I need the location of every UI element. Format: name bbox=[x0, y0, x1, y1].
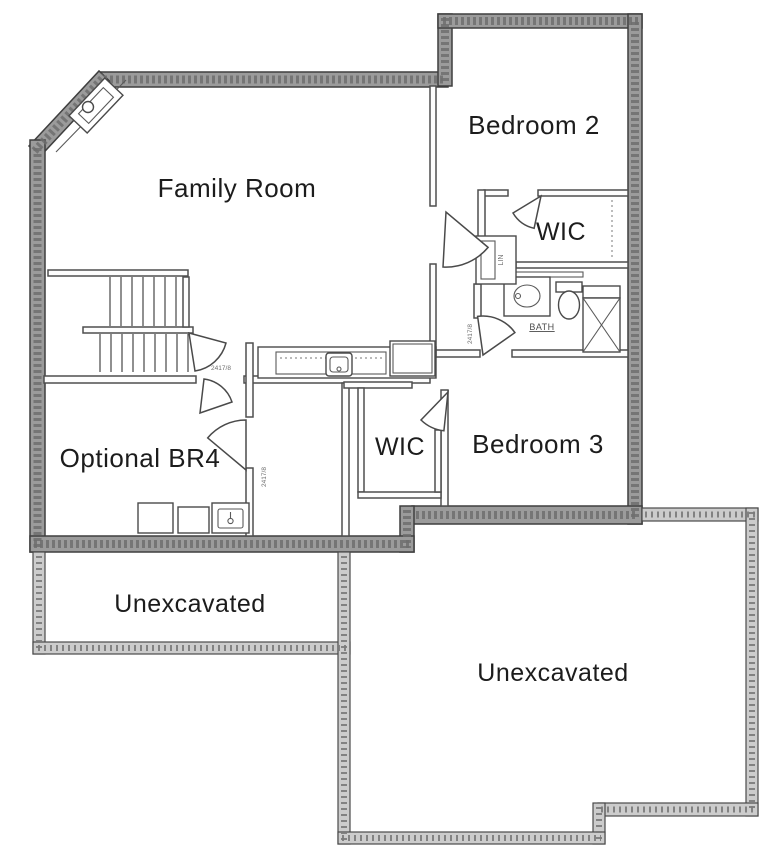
door-bath bbox=[478, 316, 515, 355]
wall-bedroom2-closet bbox=[478, 190, 485, 238]
stairs bbox=[100, 277, 189, 372]
dim-bath-door: 2417/8 bbox=[467, 324, 474, 344]
label-family-room: Family Room bbox=[158, 173, 317, 203]
wall-hall-upper bbox=[430, 86, 436, 206]
stair-treads-lower bbox=[100, 334, 188, 372]
label-bedroom-3: Bedroom 3 bbox=[472, 429, 604, 459]
label-bath: BATH bbox=[529, 322, 554, 332]
unexcavated-wall-left-edge bbox=[33, 552, 45, 654]
shower-curb bbox=[583, 286, 620, 298]
wall-wic1-top-right bbox=[538, 190, 628, 196]
label-unexcavated-right: Unexcavated bbox=[477, 659, 628, 687]
bathroom-fixtures bbox=[504, 272, 620, 352]
laundry-fixtures bbox=[138, 503, 249, 533]
wall-bath-bottom-left bbox=[436, 350, 480, 357]
laundry-appliance-1 bbox=[138, 503, 173, 533]
stair-post bbox=[183, 277, 189, 327]
floor-plan-drawing: LIN Family Room Bedroom 2 WIC BATH Bedro… bbox=[0, 0, 772, 861]
wall-bath-left bbox=[474, 284, 481, 318]
fireplace-flue bbox=[83, 102, 94, 113]
wall-stair-header bbox=[48, 270, 188, 276]
wall-br4-right-upper bbox=[246, 343, 253, 417]
toilet-bowl bbox=[559, 291, 580, 319]
door-bedroom3 bbox=[421, 392, 448, 431]
laundry-appliance-2 bbox=[178, 507, 209, 533]
linen-closet-label: LIN bbox=[498, 255, 505, 266]
wall-wic2-left bbox=[358, 388, 364, 492]
stair-stringer bbox=[83, 327, 193, 333]
door-corridor bbox=[200, 379, 232, 413]
wet-bar-counter bbox=[258, 341, 436, 378]
wall-wic2-top bbox=[344, 382, 412, 388]
unexcavated-walls bbox=[33, 508, 758, 844]
label-unexcavated-left: Unexcavated bbox=[114, 590, 265, 618]
wall-wic2-bottom bbox=[358, 492, 441, 498]
label-wic-lower: WIC bbox=[375, 433, 425, 461]
wall-corridor bbox=[342, 383, 349, 536]
stair-treads-upper bbox=[110, 277, 189, 327]
label-bedroom-2: Bedroom 2 bbox=[468, 110, 600, 140]
wall-br4-top bbox=[44, 376, 196, 383]
vanity-counter bbox=[505, 272, 583, 277]
dim-stair-door: 2417/8 bbox=[211, 365, 231, 372]
wall-wic1-bottom bbox=[516, 262, 628, 268]
floor-plan: LIN Family Room Bedroom 2 WIC BATH Bedro… bbox=[0, 0, 772, 861]
bar-appliance bbox=[390, 341, 435, 376]
label-wic-upper: WIC bbox=[536, 218, 586, 246]
label-optional-br4: Optional BR4 bbox=[60, 443, 221, 473]
dim-br4-door: 2417/8 bbox=[261, 467, 268, 487]
wall-wic1-top-left bbox=[484, 190, 508, 196]
wall-wic2-right bbox=[435, 430, 441, 492]
unexcavated-wall-divider bbox=[338, 552, 350, 844]
